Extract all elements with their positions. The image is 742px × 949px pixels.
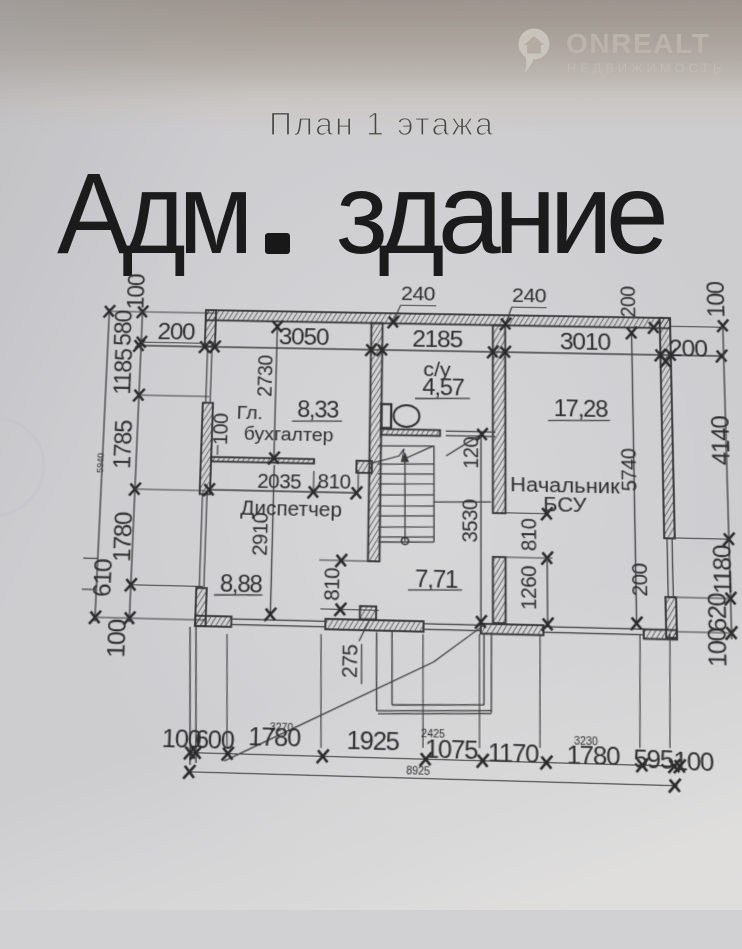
svg-text:8,88: 8,88 xyxy=(219,570,262,598)
svg-text:1260: 1260 xyxy=(516,566,540,611)
svg-text:100: 100 xyxy=(673,746,714,776)
svg-text:600: 600 xyxy=(194,726,234,756)
svg-text:610: 610 xyxy=(88,559,118,598)
svg-text:200: 200 xyxy=(157,318,196,345)
svg-text:2035: 2035 xyxy=(257,469,302,493)
svg-text:100: 100 xyxy=(122,274,151,310)
svg-text:2185: 2185 xyxy=(412,326,463,353)
svg-text:8,33: 8,33 xyxy=(297,396,339,422)
svg-text:200: 200 xyxy=(616,286,640,317)
svg-text:810: 810 xyxy=(517,518,541,551)
svg-text:5740: 5740 xyxy=(616,448,640,491)
svg-text:3050: 3050 xyxy=(279,323,330,350)
svg-text:240: 240 xyxy=(401,282,436,305)
svg-text:4140: 4140 xyxy=(706,416,736,466)
svg-text:3230: 3230 xyxy=(574,735,598,747)
svg-text:620: 620 xyxy=(702,593,732,633)
svg-text:100: 100 xyxy=(701,281,730,318)
svg-text:200: 200 xyxy=(669,335,708,362)
svg-text:17,28: 17,28 xyxy=(554,396,608,423)
svg-text:275: 275 xyxy=(337,644,362,678)
svg-text:Диспетчер: Диспетчер xyxy=(240,496,342,521)
svg-text:810: 810 xyxy=(319,568,343,602)
svg-text:8925: 8925 xyxy=(406,765,430,777)
svg-text:2425: 2425 xyxy=(421,727,445,739)
svg-text:3270: 3270 xyxy=(270,721,294,733)
svg-text:580: 580 xyxy=(108,310,137,346)
svg-text:4,57: 4,57 xyxy=(422,374,464,400)
svg-text:240: 240 xyxy=(512,284,547,307)
svg-text:1170: 1170 xyxy=(488,738,539,768)
svg-text:1180: 1180 xyxy=(707,545,737,595)
svg-text:2730: 2730 xyxy=(253,355,277,397)
svg-text:810: 810 xyxy=(317,469,351,492)
svg-text:595: 595 xyxy=(633,744,674,774)
svg-text:7,71: 7,71 xyxy=(415,565,458,593)
svg-text:1780: 1780 xyxy=(108,512,138,563)
svg-text:3530: 3530 xyxy=(458,499,482,543)
svg-text:100: 100 xyxy=(102,619,132,658)
svg-text:Гл.: Гл. xyxy=(236,402,263,424)
svg-text:бухгалтер: бухгалтер xyxy=(244,423,334,446)
svg-text:БСУ: БСУ xyxy=(543,493,587,518)
svg-text:3010: 3010 xyxy=(560,328,611,355)
svg-text:5940: 5940 xyxy=(94,452,106,473)
svg-text:1925: 1925 xyxy=(346,726,399,756)
svg-text:200: 200 xyxy=(627,563,652,597)
svg-text:100: 100 xyxy=(702,627,732,667)
svg-text:1185: 1185 xyxy=(108,348,137,395)
svg-text:100: 100 xyxy=(208,413,232,445)
svg-text:1785: 1785 xyxy=(108,420,138,469)
